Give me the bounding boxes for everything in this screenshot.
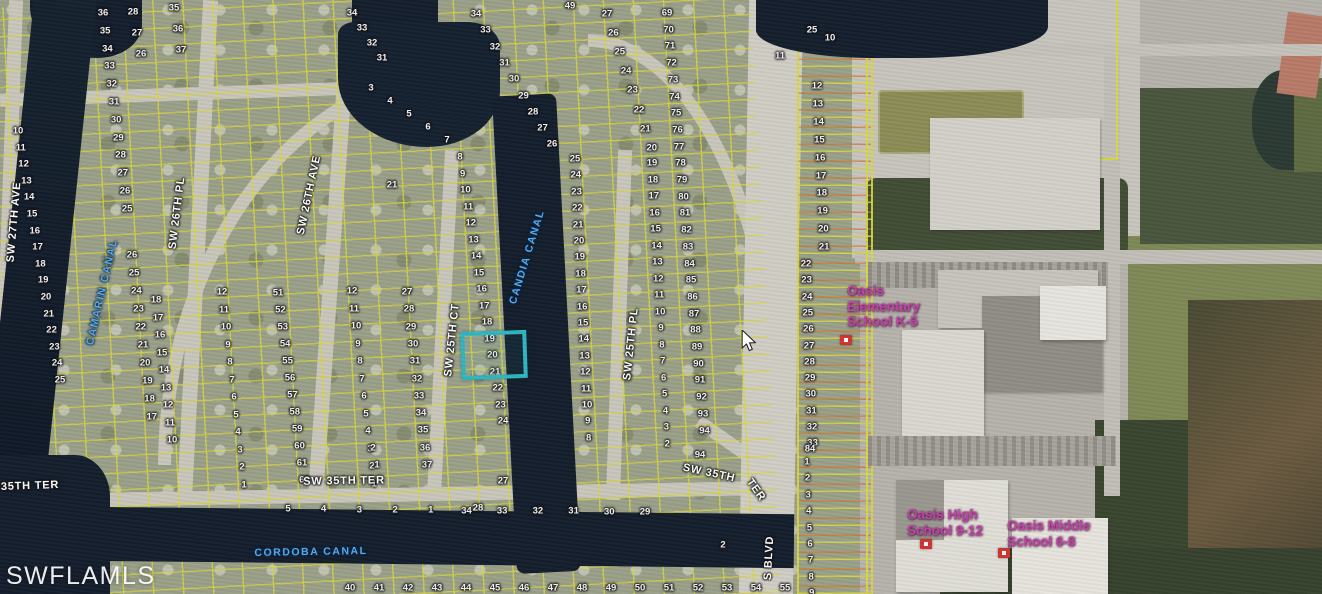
lot-number: 26	[803, 324, 814, 335]
lot-number: 20	[818, 224, 829, 235]
lot-number: 24	[52, 358, 63, 369]
lot-number: 2	[392, 504, 397, 515]
lot-number: 90	[693, 358, 704, 369]
lot-number: 17	[576, 285, 587, 296]
lot-number: 25	[570, 154, 581, 165]
watermark: SWFLAMLS	[6, 562, 156, 591]
lot-number: 33	[357, 23, 368, 34]
lot-number: 6	[807, 539, 812, 550]
lot-number: 48	[577, 583, 588, 594]
lot-number: 30	[408, 338, 419, 349]
lot-number: 74	[669, 91, 680, 102]
lot-number: 29	[113, 132, 124, 143]
lot-number: 30	[806, 389, 817, 400]
top-lake-water	[756, 0, 1048, 58]
lot-number: 44	[461, 583, 472, 594]
lot-number: 2	[720, 540, 725, 551]
lot-number: 12	[580, 367, 591, 378]
lot-number: 4	[387, 96, 392, 107]
lot-number: 9	[355, 338, 360, 349]
lot-number: 84	[684, 258, 695, 269]
lot-number: 28	[473, 503, 484, 514]
lot-number: 12	[163, 400, 174, 411]
lot-number: 10	[655, 306, 666, 317]
lot-number: 28	[115, 150, 126, 161]
lot-number: 79	[677, 175, 688, 186]
lot-number: 58	[290, 407, 301, 418]
lot-number: 12	[347, 286, 358, 297]
lot-number: 16	[815, 152, 826, 163]
lot-number: 20	[574, 236, 585, 247]
lot-number: 11	[581, 383, 591, 394]
lot-number: 24	[621, 66, 632, 77]
lot-number: 53	[278, 322, 289, 333]
street-label-s-blvd: S BLVD	[762, 536, 776, 581]
lot-number: 18	[35, 258, 46, 269]
lot-number: 32	[533, 506, 544, 517]
lot-number: 19	[575, 252, 586, 263]
lot-number: 16	[30, 225, 41, 236]
lot-number: 27	[602, 9, 613, 20]
lot-number: 22	[46, 325, 57, 336]
lot-number: 36	[98, 8, 109, 19]
lot-number: 11	[16, 142, 26, 153]
lot-number: 54	[280, 339, 291, 350]
lot-number: 49	[565, 1, 576, 12]
lot-number: 25	[615, 47, 626, 58]
lot-number: 13	[579, 350, 590, 361]
lot-number: 10	[825, 33, 836, 44]
lot-number: 9	[658, 323, 663, 334]
lot-number: 10	[582, 400, 593, 411]
lot-number: 10	[221, 322, 232, 333]
lot-number: 17	[649, 191, 660, 202]
lot-number: 4	[806, 506, 811, 517]
lot-number: 23	[627, 85, 638, 96]
lot-number: 18	[575, 268, 586, 279]
lot-number: 27	[537, 123, 548, 134]
building-elementary-4	[1040, 286, 1106, 340]
lot-number: 72	[666, 58, 677, 69]
lot-number: 28	[528, 106, 539, 117]
lot-number: 70	[663, 24, 674, 35]
parking-lot-south	[868, 436, 1116, 466]
lot-number: 81	[680, 208, 691, 219]
lot-number: 8	[227, 357, 232, 368]
lot-number: 7	[444, 135, 449, 146]
lot-number: 45	[490, 583, 501, 594]
lot-number: 37	[422, 460, 433, 471]
lot-number: 8	[809, 571, 814, 582]
lot-number: 35	[100, 25, 111, 36]
lot-number: 27	[498, 476, 509, 487]
lot-number: 19	[647, 158, 658, 169]
lot-number: 29	[518, 90, 529, 101]
lot-number: 9	[460, 168, 465, 179]
lot-number: 15	[157, 347, 168, 358]
lot-number: 11	[775, 51, 785, 62]
lot-number: 11	[654, 290, 664, 301]
lot-number: 42	[403, 583, 414, 594]
lot-number: 17	[816, 170, 827, 181]
lot-number: 35	[169, 3, 180, 14]
lot-number: 5	[363, 408, 368, 419]
lot-number: 7	[229, 374, 234, 385]
lot-number: 8	[659, 339, 664, 350]
lot-number: 46	[519, 583, 530, 594]
lot-number: 55	[282, 356, 293, 367]
lot-number: 93	[698, 408, 709, 419]
school-icon	[920, 539, 932, 549]
school-icon	[840, 335, 852, 345]
lot-number: 24	[131, 286, 142, 297]
lot-number: 24	[802, 291, 813, 302]
lot-number: 21	[640, 123, 651, 134]
lot-number: 17	[479, 300, 490, 311]
lot-number: 27	[118, 168, 129, 179]
lot-number: 14	[579, 334, 590, 345]
lot-number: 34	[416, 408, 427, 419]
lot-number: 31	[568, 506, 579, 517]
lot-number: 57	[287, 390, 298, 401]
lot-number: 24	[498, 416, 509, 427]
lot-number: 27	[804, 340, 815, 351]
lot-number: 1	[374, 460, 379, 471]
lot-number: 51	[273, 288, 284, 299]
lot-number: 2	[805, 473, 810, 484]
lot-number: 12	[812, 81, 823, 92]
street-label-35th-ter-partial: 35TH TER	[1, 479, 60, 493]
lot-number: 27	[132, 28, 143, 39]
lot-number: 7	[660, 356, 665, 367]
school-label-middle: Oasis Middle School 6-8	[1007, 518, 1090, 549]
lot-number: 61	[297, 458, 308, 469]
lot-number: 5	[662, 389, 667, 400]
lot-number: 25	[129, 268, 140, 279]
lot-number: 73	[668, 74, 679, 85]
lot-number: 17	[147, 412, 158, 423]
lot-number: 13	[468, 234, 479, 245]
lot-number: 34	[471, 9, 482, 20]
lot-number: 15	[814, 134, 825, 145]
lot-number: 20	[647, 142, 658, 153]
lot-number: 18	[817, 188, 828, 199]
lot-number: 25	[122, 203, 133, 214]
lot-number: 10	[460, 185, 471, 196]
lot-number: 30	[509, 74, 520, 85]
lot-number: 23	[133, 304, 144, 315]
lot-number: 17	[153, 312, 164, 323]
lot-number: 28	[128, 7, 139, 18]
map-canvas[interactable]: 1011121314151617181920212223242536353433…	[0, 0, 1322, 594]
lot-number: 7	[359, 373, 364, 384]
lot-number: 28	[804, 356, 815, 367]
lot-number: 94	[695, 450, 706, 461]
lot-number: 77	[674, 141, 685, 152]
highlighted-parcel[interactable]	[460, 330, 528, 380]
lot-number: 7	[808, 555, 813, 566]
lot-number: 91	[695, 375, 706, 386]
lot-number: 23	[801, 275, 812, 286]
lot-number: 20	[41, 292, 52, 303]
lot-number: 20	[140, 358, 151, 369]
canal-label-cordoba: CORDOBA CANAL	[254, 545, 367, 559]
lot-number: 25	[807, 25, 818, 36]
lot-number: 14	[24, 192, 35, 203]
lot-number: 6	[425, 122, 430, 133]
lot-number: 27	[402, 287, 413, 298]
lot-number: 41	[374, 583, 385, 594]
lot-number: 55	[780, 583, 791, 594]
lot-number: 11	[219, 304, 229, 315]
lot-number: 51	[664, 583, 675, 594]
lot-number: 22	[493, 383, 504, 394]
boundary-line-campus-east	[1116, 0, 1118, 160]
lot-number: 36	[420, 442, 431, 453]
lot-number: 6	[231, 392, 236, 403]
lot-number: 25	[55, 375, 66, 386]
lot-number: 85	[686, 275, 697, 286]
lot-number: 8	[586, 432, 591, 443]
lot-number: 18	[648, 174, 659, 185]
lot-number: 49	[606, 583, 617, 594]
lot-number: 10	[167, 435, 178, 446]
lot-number: 3	[237, 444, 242, 455]
lot-number: 32	[107, 79, 118, 90]
lot-number: 3	[368, 83, 373, 94]
lot-number: 23	[571, 186, 582, 197]
lot-number: 47	[548, 583, 559, 594]
lot-number: 23	[49, 341, 60, 352]
lot-number: 84	[805, 444, 816, 455]
lot-number: 15	[27, 209, 38, 220]
lot-number: 5	[233, 409, 238, 420]
lot-number: 78	[675, 158, 686, 169]
lot-number: 10	[351, 321, 362, 332]
lot-number: 22	[634, 104, 645, 115]
lot-number: 8	[357, 356, 362, 367]
lot-number: 15	[474, 267, 485, 278]
lot-number: 29	[640, 507, 651, 518]
lot-number: 88	[690, 325, 701, 336]
lot-number: 15	[578, 318, 589, 329]
lot-number: 22	[572, 203, 583, 214]
lot-number: 12	[653, 273, 664, 284]
lot-number: 52	[693, 583, 704, 594]
lot-number: 34	[102, 43, 113, 54]
school-label-high: Oasis High School 9-12	[907, 507, 983, 538]
lot-number: 12	[466, 218, 477, 229]
lot-number: 19	[142, 376, 153, 387]
lot-number: 26	[120, 186, 131, 197]
lot-number: 25	[803, 307, 814, 318]
lot-number: 21	[138, 340, 149, 351]
lot-number: 13	[161, 382, 172, 393]
lot-number: 22	[801, 259, 812, 270]
lot-number: 40	[345, 583, 356, 594]
lot-number: 53	[722, 583, 733, 594]
lot-number: 16	[649, 207, 660, 218]
lot-number: 16	[577, 301, 588, 312]
lot-number: 10	[13, 126, 24, 137]
lot-number: 86	[687, 291, 698, 302]
street-label-sw-35th-ter: SW 35TH TER	[303, 474, 385, 487]
lot-number: 1	[428, 505, 433, 516]
lot-number: 11	[349, 303, 359, 314]
lot-number: 3	[806, 489, 811, 500]
lot-number: 15	[650, 224, 661, 235]
lot-number: 50	[635, 583, 646, 594]
lot-number: 21	[387, 180, 398, 191]
lot-number: 29	[406, 321, 417, 332]
lot-number: 26	[547, 139, 558, 150]
lot-number: 5	[285, 504, 290, 515]
lot-number: 35	[418, 425, 429, 436]
building-elementary-3	[902, 330, 984, 442]
building-elementary-north	[930, 118, 1100, 230]
lot-number: 17	[32, 242, 43, 253]
lot-number: 4	[321, 504, 326, 515]
lot-number: 16	[476, 284, 487, 295]
lot-number: 12	[18, 159, 29, 170]
lot-number: 31	[499, 57, 510, 68]
lot-number: 18	[151, 295, 162, 306]
lot-number: 1	[241, 479, 246, 490]
lot-number: 21	[819, 242, 830, 253]
lot-number: 29	[805, 373, 816, 384]
lot-number: 6	[661, 372, 666, 383]
lot-number: 12	[217, 287, 228, 298]
lot-number: 36	[173, 24, 184, 35]
lot-number: 59	[292, 424, 303, 435]
lot-number: 14	[471, 251, 482, 262]
lot-number: 2	[665, 438, 670, 449]
lot-number: 52	[275, 305, 286, 316]
lot-number: 13	[652, 257, 663, 268]
lot-number: 9	[225, 339, 230, 350]
lot-number: 33	[480, 25, 491, 36]
lot-number: 54	[751, 583, 762, 594]
lot-number: 22	[136, 322, 147, 333]
lot-number: 75	[671, 108, 682, 119]
lot-number: 31	[109, 97, 120, 108]
lot-number: 30	[111, 114, 122, 125]
lot-number: 89	[692, 342, 703, 353]
lot-number: 94	[699, 425, 710, 436]
lot-number: 69	[662, 8, 673, 19]
lot-number: 21	[573, 219, 584, 230]
lot-number: 34	[461, 505, 472, 516]
lot-number: 60	[294, 441, 305, 452]
lot-number: 23	[495, 399, 506, 410]
lot-number: 32	[367, 38, 378, 49]
lot-number: 18	[144, 394, 155, 405]
lot-number: 56	[285, 373, 296, 384]
lot-number: 26	[127, 250, 138, 261]
lot-number: 14	[813, 116, 824, 127]
lot-number: 80	[678, 191, 689, 202]
lot-number: 37	[176, 45, 187, 56]
lot-number: 43	[432, 583, 443, 594]
lot-number: 9	[585, 416, 590, 427]
lot-number: 3	[664, 422, 669, 433]
lot-number: 26	[608, 28, 619, 39]
lot-number: 26	[136, 49, 147, 60]
lot-number: 2	[370, 443, 375, 454]
lot-number: 5	[807, 522, 812, 533]
lot-number: 4	[663, 405, 668, 416]
lot-number: 31	[377, 53, 388, 64]
lot-number: 32	[490, 41, 501, 52]
lot-number: 24	[571, 170, 582, 181]
lot-number: 71	[665, 41, 676, 52]
lot-number: 4	[235, 427, 240, 438]
mouse-cursor-icon	[740, 330, 758, 357]
lot-number: 21	[44, 308, 55, 319]
lot-number: 4	[365, 426, 370, 437]
lot-number: 14	[651, 240, 662, 251]
lot-number: 33	[497, 505, 508, 516]
lot-number: 28	[404, 304, 415, 315]
lot-number: 5	[406, 109, 411, 120]
lot-number: 13	[813, 98, 824, 109]
lot-number: 32	[412, 373, 423, 384]
lot-number: 14	[159, 365, 170, 376]
school-icon	[998, 548, 1010, 558]
lot-number: 19	[38, 275, 49, 286]
lot-number: 82	[681, 225, 692, 236]
lot-number: 32	[807, 422, 818, 433]
lot-number: 3	[357, 504, 362, 515]
school-label-elementary: Oasis Elementary School K-5	[847, 283, 920, 330]
lot-number: 76	[672, 124, 683, 135]
lot-number: 33	[104, 61, 115, 72]
lot-number: 11	[165, 417, 175, 428]
lot-number: 1	[804, 457, 809, 468]
lot-number: 19	[817, 206, 828, 217]
lot-number: 34	[347, 8, 358, 19]
lot-number: 18	[482, 317, 493, 328]
lot-number: 31	[806, 405, 817, 416]
lot-number: 6	[361, 391, 366, 402]
lot-number: 2	[239, 462, 244, 473]
lot-number: 31	[410, 356, 421, 367]
lot-number: 8	[457, 152, 462, 163]
lot-number: 11	[463, 201, 473, 212]
lot-number: 87	[689, 308, 700, 319]
lot-number: 9	[809, 588, 814, 594]
lot-number: 16	[155, 330, 166, 341]
lot-number: 30	[604, 506, 615, 517]
lot-number: 33	[414, 390, 425, 401]
lot-number: 83	[683, 241, 694, 252]
lot-number: 92	[696, 392, 707, 403]
